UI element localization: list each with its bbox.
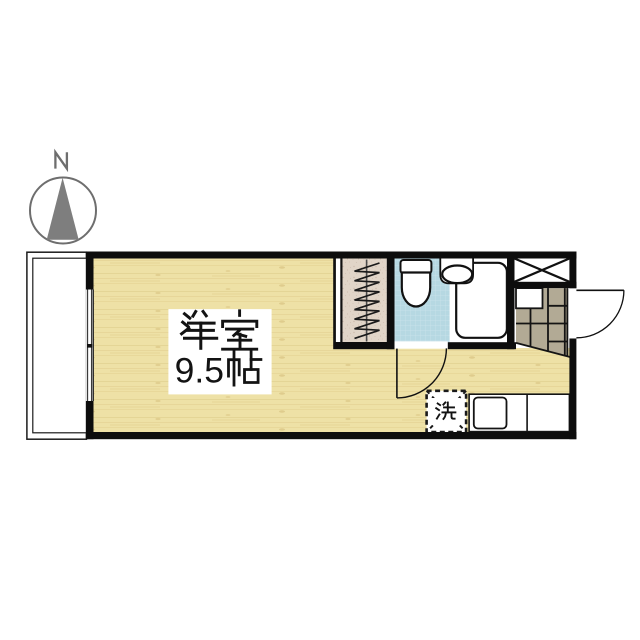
svg-text:9.5: 9.5 [175, 351, 224, 391]
